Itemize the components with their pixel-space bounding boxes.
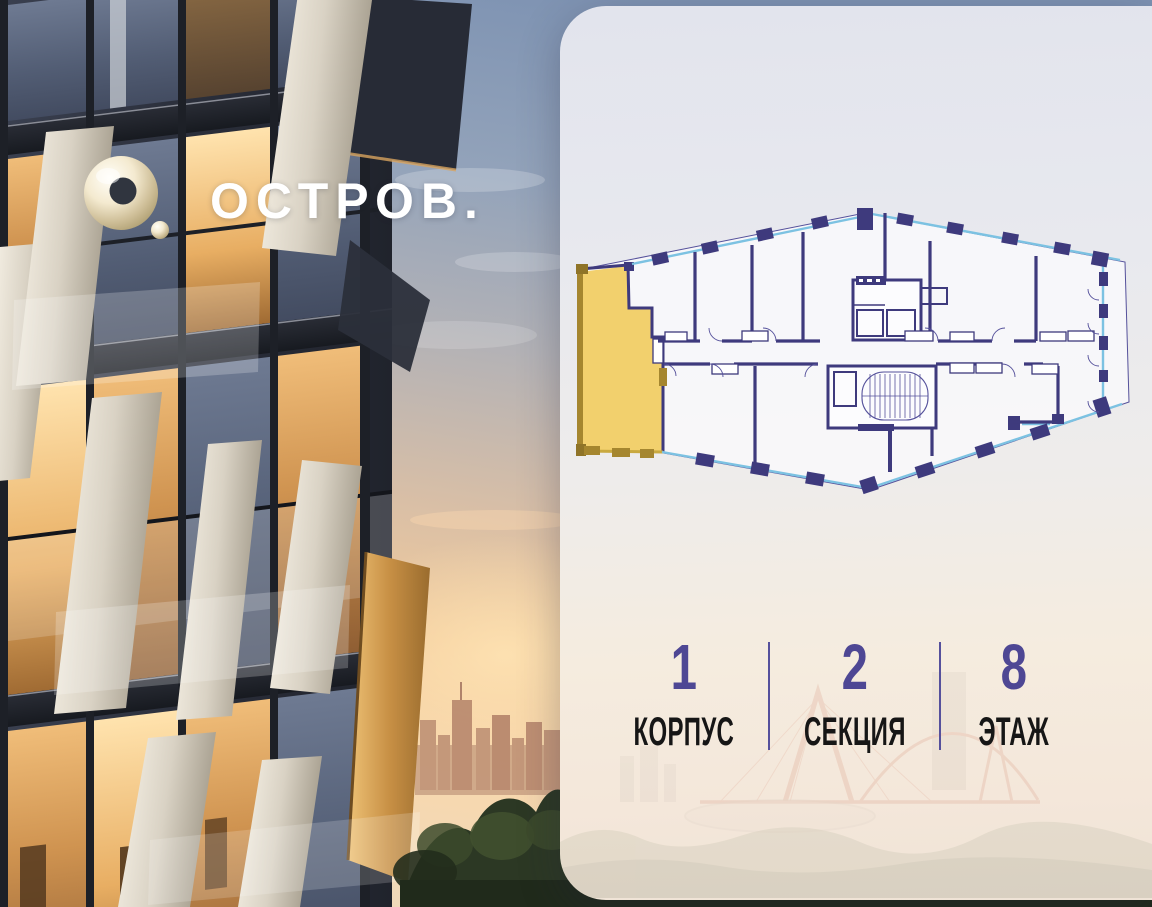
o-donut-icon xyxy=(80,150,176,246)
unit-location-info: 1 КОРПУС 2 СЕКЦИЯ 8 ЭТАЖ xyxy=(600,638,1086,760)
etazh-value: 8 xyxy=(1001,638,1027,697)
floor-plan[interactable] xyxy=(568,193,1152,509)
info-etazh: 8 ЭТАЖ xyxy=(941,638,1086,760)
plan-core-stairs xyxy=(828,366,936,431)
sektsiya-label: СЕКЦИЯ xyxy=(804,710,906,755)
apartment-card-screen: ОСТРОВ. xyxy=(0,0,1152,907)
korpus-value: 1 xyxy=(671,638,697,697)
korpus-label: КОРПУС xyxy=(634,710,735,755)
etazh-label: ЭТАЖ xyxy=(978,710,1048,755)
unit-info-card: 1 КОРПУС 2 СЕКЦИЯ 8 ЭТАЖ xyxy=(560,6,1152,900)
sektsiya-value: 2 xyxy=(841,638,867,697)
info-sektsiya: 2 СЕКЦИЯ xyxy=(770,638,940,760)
info-korpus: 1 КОРПУС xyxy=(600,638,768,760)
brand-logo: ОСТРОВ. xyxy=(80,150,485,246)
brand-name: ОСТРОВ. xyxy=(210,172,485,230)
